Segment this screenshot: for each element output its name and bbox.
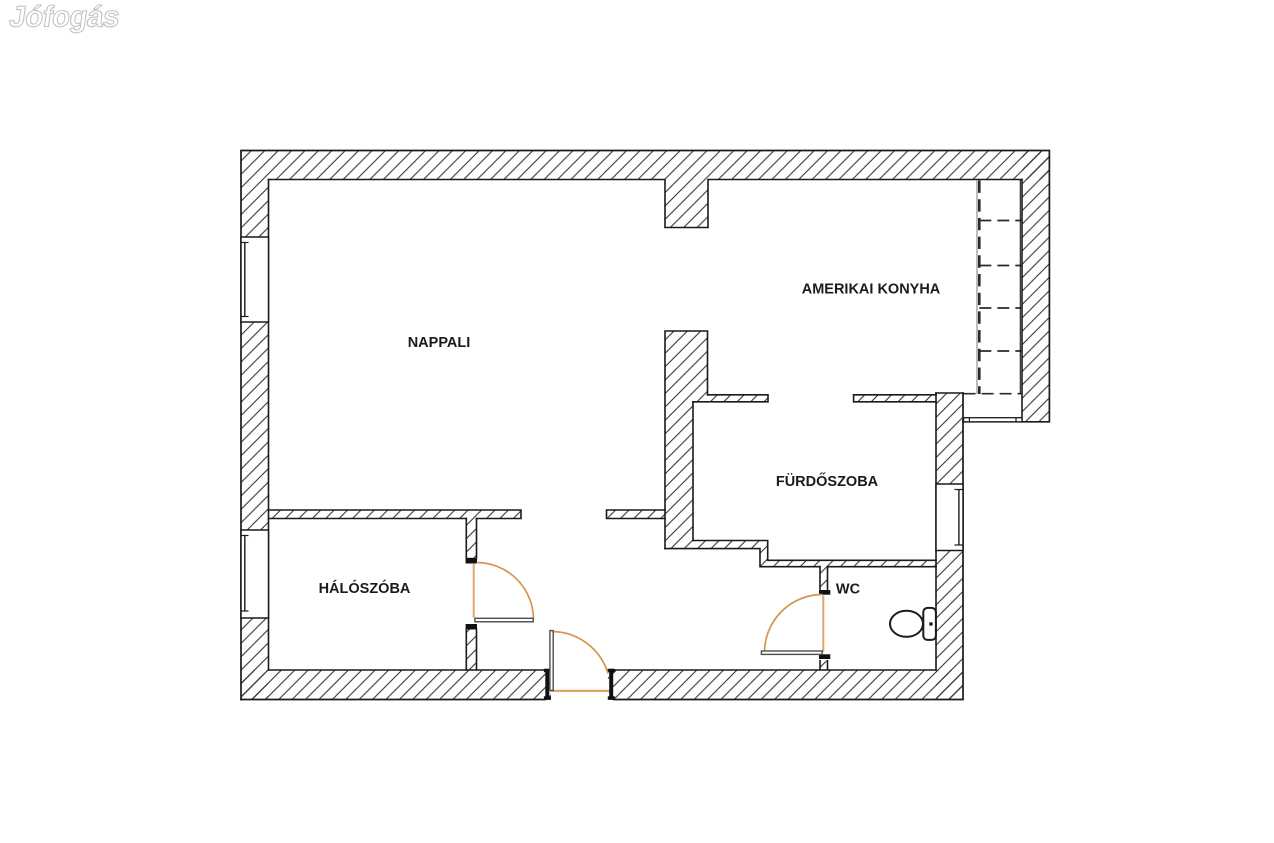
svg-text:FÜRDŐSZOBA: FÜRDŐSZOBA — [776, 472, 879, 490]
svg-text:NAPPALI: NAPPALI — [408, 335, 471, 351]
svg-text:WC: WC — [836, 582, 861, 598]
svg-text:AMERIKAI KONYHA: AMERIKAI KONYHA — [802, 282, 941, 298]
svg-text:HÁLÓSZÓBA: HÁLÓSZÓBA — [319, 579, 411, 597]
svg-text:Jófogás: Jófogás — [7, 1, 121, 34]
